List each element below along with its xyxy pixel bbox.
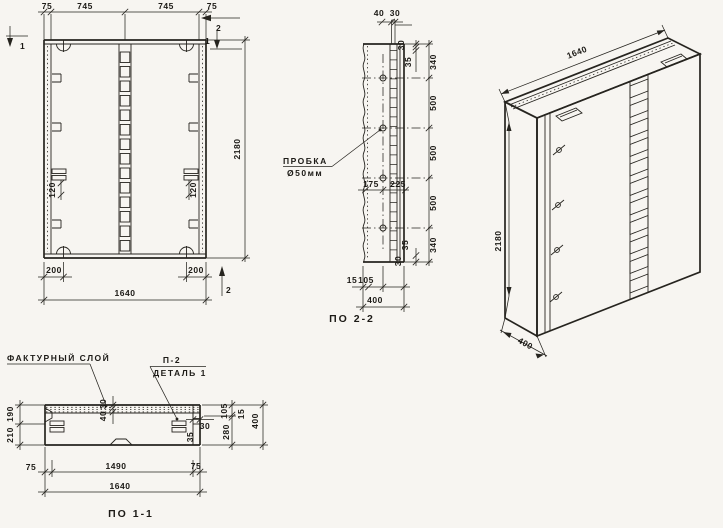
iso-panel-outline bbox=[505, 38, 700, 336]
section1-hook-left bbox=[50, 421, 64, 432]
dim-label-height: 2180 bbox=[232, 139, 242, 160]
dim-label: 745 bbox=[77, 1, 93, 11]
dim-label: 1640 bbox=[110, 481, 131, 491]
dim-label-width: 1640 bbox=[115, 288, 136, 298]
view-front-elevation: 75 745 745 75 2180 120 120 200 200 1640 … bbox=[6, 1, 250, 305]
dim-label: 120 bbox=[188, 182, 198, 198]
dim-label: 190 bbox=[5, 406, 15, 422]
section1-key-bump bbox=[110, 439, 132, 445]
view-section-1-1: ФАКТУРНЫЙ СЛОЙ П-2 ДЕТАЛЬ 1 190 210 30 4… bbox=[5, 352, 268, 520]
dim-label: 40 bbox=[374, 8, 384, 18]
section2-plugs bbox=[380, 54, 386, 252]
dim-label: 105 bbox=[219, 403, 229, 419]
front-lifting-loops bbox=[57, 40, 194, 258]
front-edge-hooks bbox=[52, 74, 198, 228]
dim-label: 175 bbox=[363, 179, 379, 189]
iso-edge-groove bbox=[545, 113, 550, 333]
section2-caption: ПО 2-2 bbox=[329, 313, 375, 325]
dim-label: 30 bbox=[390, 8, 400, 18]
plug-callout-line1: ПРОБКА bbox=[283, 156, 328, 166]
iso-dim-width bbox=[499, 25, 668, 102]
dim-label: 500 bbox=[428, 145, 438, 161]
dim-label: 75 bbox=[191, 461, 201, 471]
view-section-2-2: ПРОБКА Ø50мм 40 30 30 35 340 500 500 500… bbox=[283, 8, 438, 325]
section2-textured-face bbox=[363, 44, 365, 262]
facture-layer-label: ФАКТУРНЫЙ СЛОЙ bbox=[7, 352, 110, 363]
panel-drawing-sheet: 75 745 745 75 2180 120 120 200 200 1640 … bbox=[0, 0, 723, 528]
dim-label: 400 bbox=[516, 335, 535, 351]
dim-label: 200 bbox=[188, 265, 204, 275]
dim-label: 30 bbox=[98, 399, 108, 409]
section1-hook-right bbox=[172, 421, 186, 432]
front-center-channel bbox=[119, 44, 131, 254]
dim-label: 75 bbox=[42, 1, 52, 11]
section-mark-2: 2 bbox=[226, 285, 231, 295]
dim-label: 75 bbox=[26, 462, 36, 472]
dim-label: 35 bbox=[403, 57, 413, 67]
dim-label: 2180 bbox=[493, 231, 503, 252]
dim-label: 745 bbox=[158, 1, 174, 11]
dim-label: 30 bbox=[396, 40, 406, 50]
section1-caption: ПО 1-1 bbox=[108, 508, 154, 520]
section-mark-1: 1 bbox=[20, 41, 25, 51]
iso-dim-height bbox=[505, 102, 512, 318]
dim-label: 1640 bbox=[565, 44, 588, 61]
front-dim-bottom bbox=[38, 262, 212, 305]
dim-label: 35 bbox=[400, 240, 410, 250]
section2-channel bbox=[390, 44, 397, 262]
dim-label: 40 bbox=[98, 411, 108, 421]
dim-label: 15 bbox=[236, 409, 246, 419]
dim-label: 225 bbox=[390, 179, 406, 189]
dim-label: 400 bbox=[250, 413, 260, 429]
front-dim-height bbox=[206, 36, 250, 262]
dim-label: 500 bbox=[428, 195, 438, 211]
section2-extensions bbox=[362, 40, 433, 266]
dim-label: 400 bbox=[367, 295, 383, 305]
section-mark-2: 2 bbox=[216, 23, 221, 33]
iso-plug-marks bbox=[550, 145, 565, 302]
section1-dim-left bbox=[15, 400, 45, 450]
dim-label: 15 bbox=[347, 275, 357, 285]
dim-label: 120 bbox=[47, 182, 57, 198]
iso-keyed-channel bbox=[630, 75, 648, 300]
section1-dim-mid bbox=[110, 396, 116, 424]
detail-label: ДЕТАЛЬ 1 bbox=[153, 368, 207, 378]
dim-label: 500 bbox=[428, 95, 438, 111]
dim-label: 280 bbox=[221, 424, 231, 440]
dim-label: 105 bbox=[358, 275, 374, 285]
section1-facture-layer bbox=[45, 407, 200, 413]
dim-label: 340 bbox=[428, 237, 438, 253]
dim-label: 200 bbox=[46, 265, 62, 275]
p2-label: П-2 bbox=[163, 355, 181, 365]
iso-lifting-loop-holes bbox=[556, 54, 687, 121]
dim-label: 35 bbox=[185, 432, 195, 442]
view-isometric: 1640 2180 400 bbox=[493, 25, 700, 359]
plug-callout-line2: Ø50мм bbox=[287, 168, 323, 178]
section2-dim-bottom bbox=[352, 266, 410, 312]
front-dim-top bbox=[38, 9, 212, 40]
section1-left-notch bbox=[45, 408, 52, 422]
dim-label: 210 bbox=[5, 427, 15, 443]
dim-label: 1490 bbox=[106, 461, 127, 471]
dim-label: 340 bbox=[428, 54, 438, 70]
iso-top-groove bbox=[509, 41, 675, 109]
drawing-svg: 75 745 745 75 2180 120 120 200 200 1640 … bbox=[0, 0, 723, 528]
section-mark-1: 1 bbox=[205, 36, 210, 46]
dim-label: 75 bbox=[207, 1, 217, 11]
section2-outline bbox=[363, 44, 404, 262]
front-panel-outline bbox=[44, 40, 206, 258]
dim-label: 30 bbox=[200, 421, 210, 431]
dim-label: 30 bbox=[393, 256, 403, 266]
